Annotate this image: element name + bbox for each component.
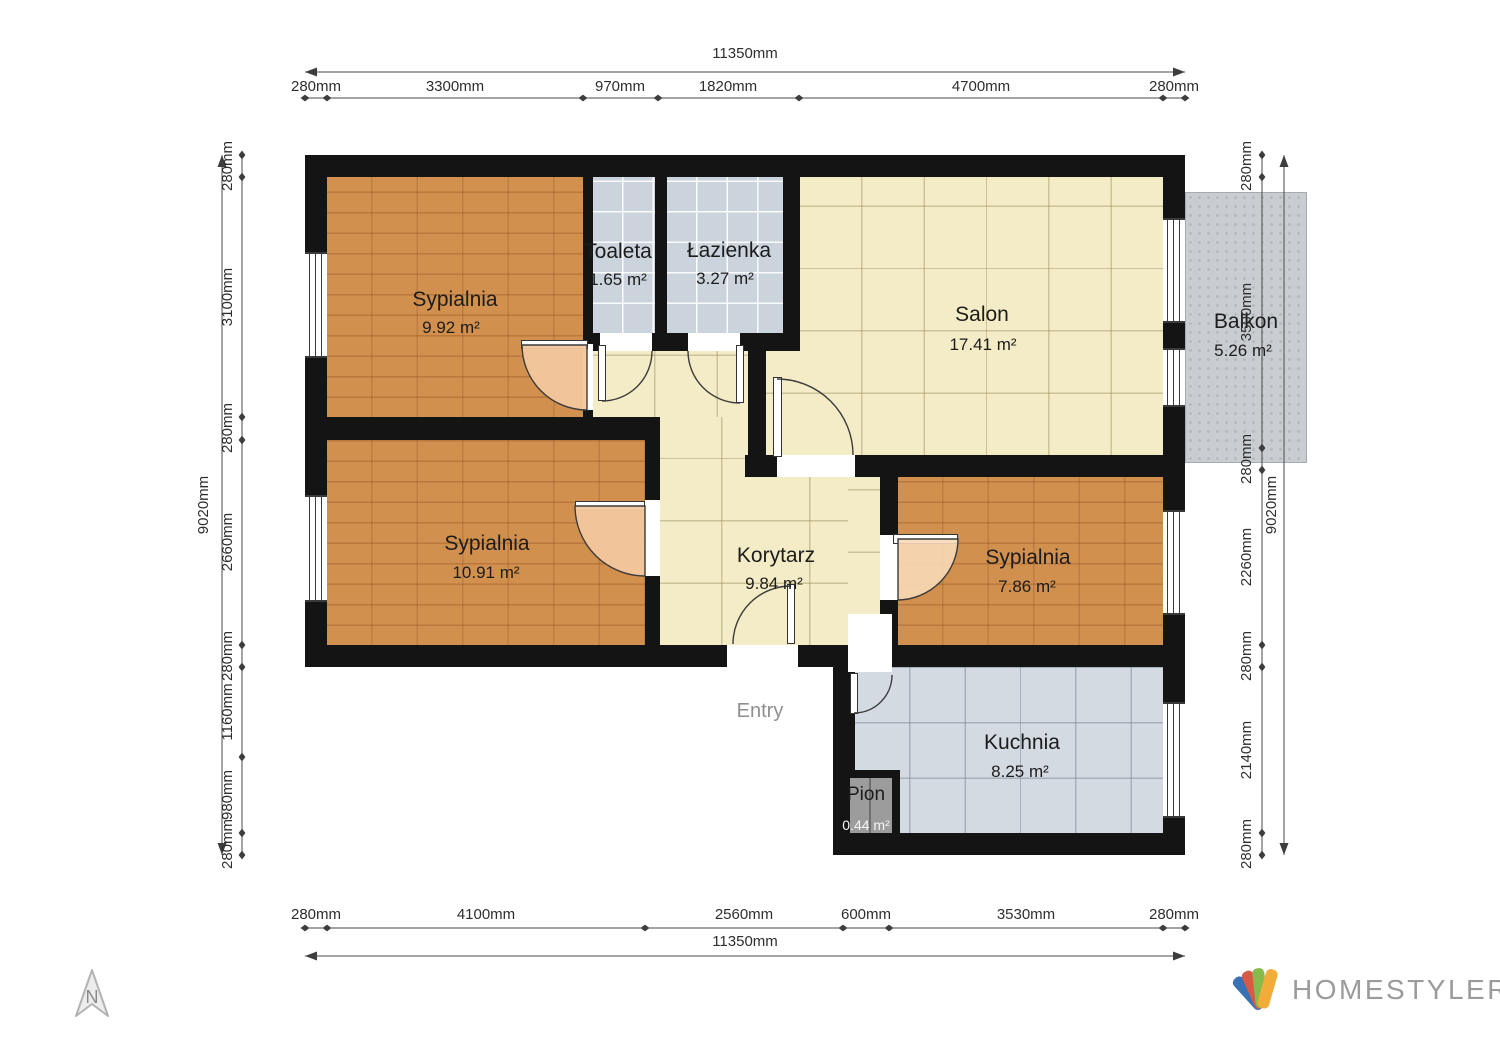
dim-bottom-seg: 280mm xyxy=(1134,906,1214,924)
door-threshold-living-room xyxy=(777,455,855,477)
wall xyxy=(855,455,1185,477)
wall xyxy=(583,410,593,417)
dim-bottom-seg: 3530mm xyxy=(986,906,1066,924)
room-label-bedroom-left: Sypialnia xyxy=(402,532,572,556)
window-bedroom-right xyxy=(1163,510,1185,615)
dim-top-seg: 280mm xyxy=(1134,78,1214,96)
wall xyxy=(305,155,1185,177)
dim-top-seg: 3300mm xyxy=(415,78,495,96)
door-threshold-kitchen xyxy=(848,614,892,672)
dim-bottom-seg: 2560mm xyxy=(704,906,784,924)
dim-left-total: 9020mm xyxy=(195,465,213,545)
room-area-bedroom-top: 9.92 m² xyxy=(366,318,536,338)
room-floor-living-room-ext xyxy=(766,351,800,455)
dim-top-seg: 970mm xyxy=(580,78,660,96)
wall xyxy=(892,645,1185,667)
entry-label: Entry xyxy=(715,700,805,723)
dim-top-seg: 1820mm xyxy=(688,78,768,96)
room-area-bathroom: 3.27 m² xyxy=(640,269,810,289)
door-leaf-bedroom-left xyxy=(575,501,645,511)
door-leaf-toilet xyxy=(598,345,606,401)
door-leaf-living-room xyxy=(773,377,782,457)
room-area-corridor: 9.84 m² xyxy=(689,574,859,594)
dim-left-seg: 280mm xyxy=(219,804,237,884)
door-leaf-bedroom-top xyxy=(521,340,588,349)
homestyler-logo: HOMESTYLER xyxy=(1292,974,1500,1006)
room-area-living-room: 17.41 m² xyxy=(898,335,1068,355)
dim-bottom-total: 11350mm xyxy=(705,933,785,951)
dim-top-seg: 4700mm xyxy=(941,78,1021,96)
dim-left-seg: 3100mm xyxy=(219,257,237,337)
window-kitchen xyxy=(1163,702,1185,818)
dim-right-total: 9020mm xyxy=(1263,465,1281,545)
window-bedroom-top xyxy=(305,252,327,358)
wall xyxy=(833,833,1185,855)
window-bedroom-left xyxy=(305,495,327,602)
homestyler-logo-icon xyxy=(1231,968,1279,1012)
dim-bottom-seg: 4100mm xyxy=(446,906,526,924)
room-label-bathroom: Łazienka xyxy=(644,239,814,263)
room-label-bedroom-right: Sypialnia xyxy=(943,546,1113,570)
room-label-kitchen: Kuchnia xyxy=(937,731,1107,755)
wall xyxy=(305,645,727,667)
room-label-bedroom-top: Sypialnia xyxy=(370,288,540,312)
room-area-kitchen: 8.25 m² xyxy=(935,762,1105,782)
dim-right-seg: 2260mm xyxy=(1238,517,1256,597)
wall xyxy=(745,455,777,477)
room-floor-corridor-mid xyxy=(660,417,748,645)
wall xyxy=(880,477,898,535)
wall xyxy=(305,417,660,440)
dim-right-seg: 280mm xyxy=(1238,804,1256,884)
dim-right-seg: 280mm xyxy=(1238,419,1256,499)
dim-bottom-seg: 600mm xyxy=(826,906,906,924)
wall xyxy=(652,333,688,351)
dim-top-total: 11350mm xyxy=(705,45,785,63)
dim-top-seg: 280mm xyxy=(276,78,356,96)
room-label-living-room: Salon xyxy=(897,303,1067,327)
room-floor-corridor-upper xyxy=(593,351,748,417)
dim-left-seg: 1160mm xyxy=(219,672,237,752)
dim-right-seg: 280mm xyxy=(1238,616,1256,696)
room-label-corridor: Korytarz xyxy=(691,544,861,568)
room-area-bedroom-right: 7.86 m² xyxy=(942,577,1112,597)
north-label: N xyxy=(86,987,99,1007)
dim-right-seg: 3500mm xyxy=(1238,272,1256,352)
dim-right-seg: 2140mm xyxy=(1238,710,1256,790)
wall xyxy=(798,645,848,667)
dim-left-seg: 280mm xyxy=(219,126,237,206)
dim-left-seg: 280mm xyxy=(219,388,237,468)
room-label-shaft: Pion xyxy=(781,784,951,806)
dim-bottom-seg: 280mm xyxy=(276,906,356,924)
door-leaf-bedroom-right xyxy=(893,534,958,544)
door-leaf-bathroom xyxy=(736,345,744,403)
north-arrow-icon: N xyxy=(76,970,108,1016)
wall xyxy=(748,333,766,455)
room-area-shaft: 0.44 m² xyxy=(781,817,951,833)
wall xyxy=(645,440,660,500)
dim-left-seg: 2660mm xyxy=(219,502,237,582)
floor-plan-canvas: N Sypialnia 9.92 m² Toaleta 1.65 m² Łazi… xyxy=(0,0,1500,1060)
window-living-room xyxy=(1163,218,1185,323)
door-leaf-kitchen xyxy=(850,673,858,714)
dim-right-seg: 280mm xyxy=(1238,126,1256,206)
wall xyxy=(645,576,660,645)
room-area-bedroom-left: 10.91 m² xyxy=(401,563,571,583)
